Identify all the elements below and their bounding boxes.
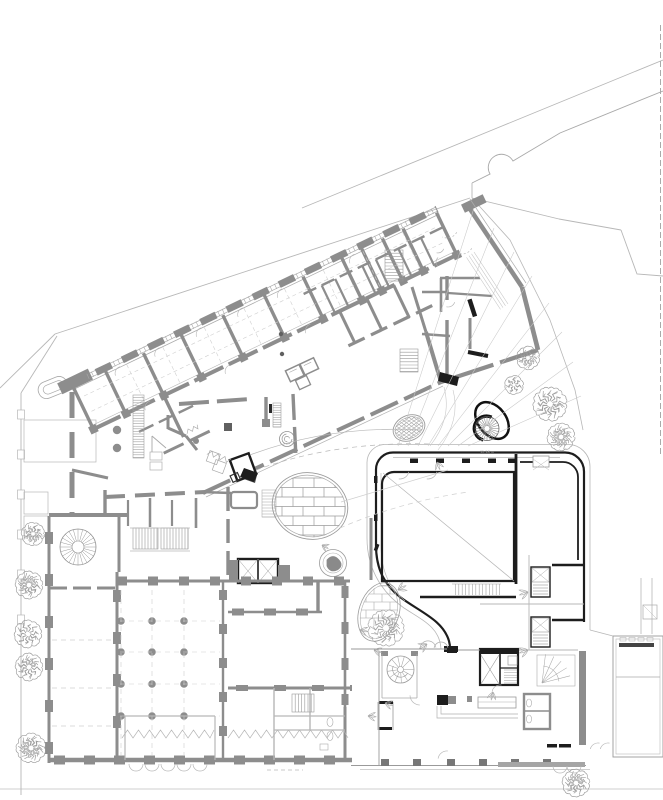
svg-text:11.18 m: 11.18 m [480,449,495,454]
